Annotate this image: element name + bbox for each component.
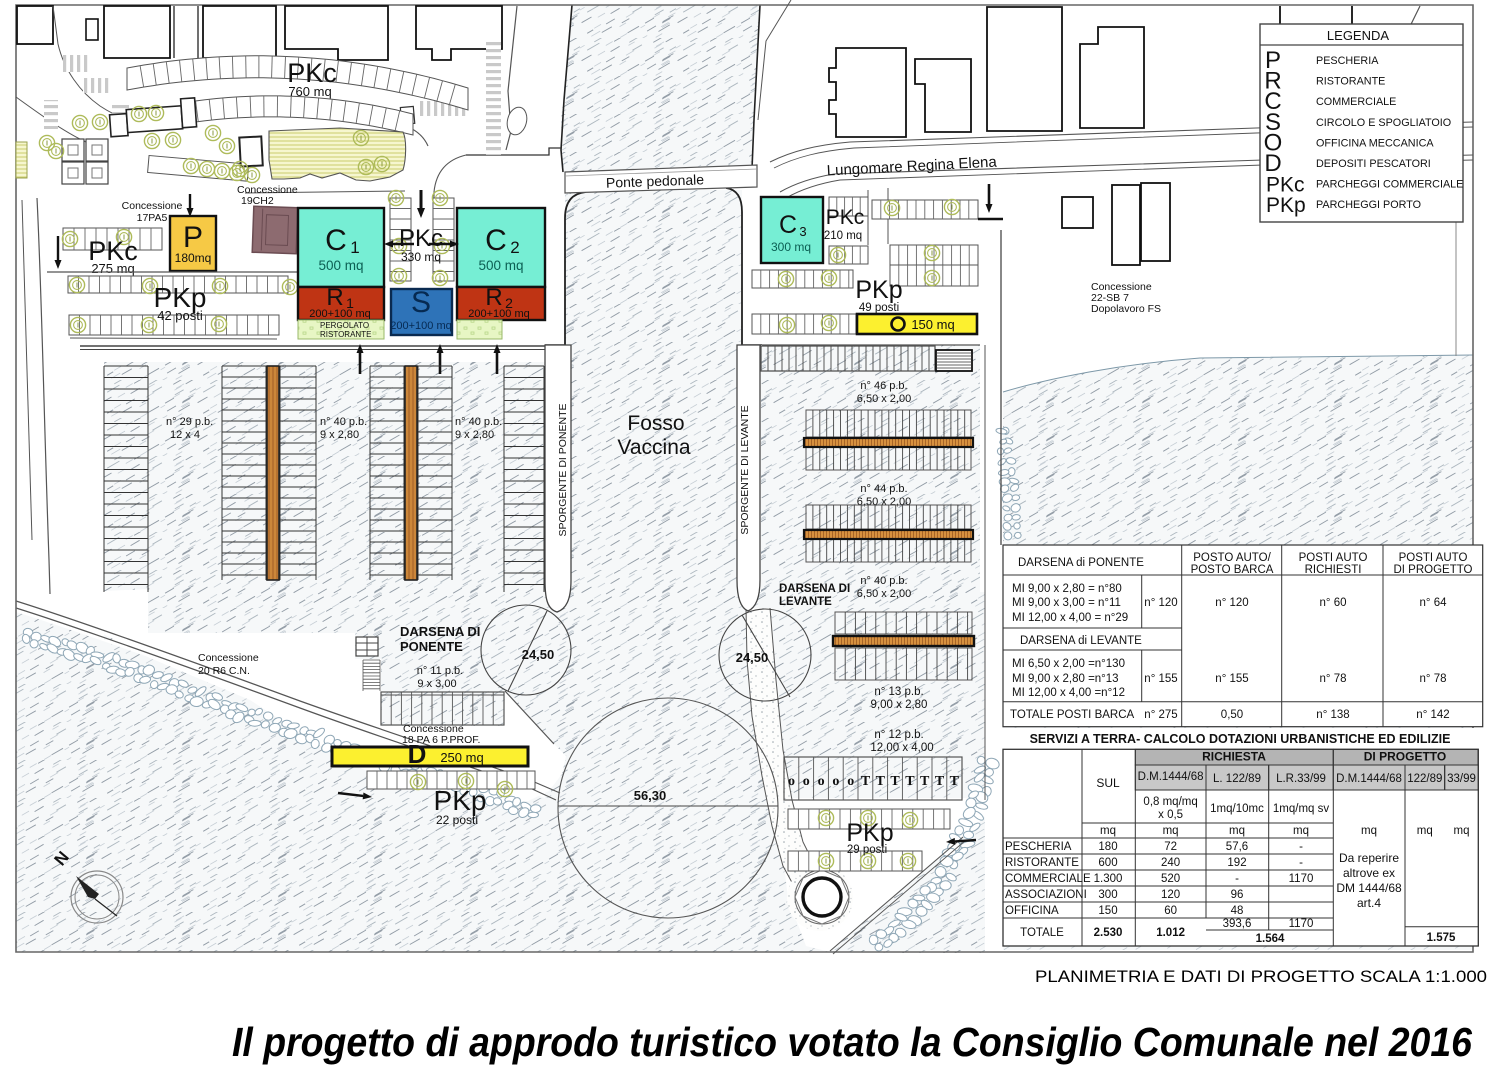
svg-text:29 posti: 29 posti: [847, 844, 887, 856]
svg-text:300 mq: 300 mq: [771, 240, 811, 254]
svg-text:Concessione: Concessione: [198, 652, 259, 664]
svg-text:R: R: [485, 284, 502, 311]
svg-text:57,6: 57,6: [1226, 841, 1248, 853]
svg-text:o: o: [803, 774, 810, 789]
svg-text:RISTORANTE: RISTORANTE: [320, 330, 371, 339]
svg-text:D.M.1444/68: D.M.1444/68: [1138, 771, 1204, 783]
svg-text:Concessione: Concessione: [122, 200, 183, 212]
svg-text:PKc: PKc: [399, 225, 443, 252]
svg-text:SPORGENTE DI PONENTE: SPORGENTE DI PONENTE: [557, 403, 569, 536]
svg-text:T: T: [861, 774, 871, 789]
svg-text:0,8 mq/mq: 0,8 mq/mq: [1143, 796, 1197, 808]
svg-text:PKc: PKc: [1266, 174, 1305, 197]
svg-text:275 mq: 275 mq: [91, 261, 134, 276]
svg-text:RICHIESTA: RICHIESTA: [1202, 750, 1266, 764]
svg-text:520: 520: [1161, 873, 1180, 885]
svg-text:mq: mq: [1163, 825, 1179, 837]
svg-text:art.4: art.4: [1357, 896, 1381, 910]
svg-text:Il progetto di approdo turisti: Il progetto di approdo turistico votato …: [232, 1019, 1473, 1065]
svg-text:24,50: 24,50: [522, 647, 555, 662]
svg-text:9,00 x 2,80: 9,00 x 2,80: [871, 699, 928, 711]
svg-text:SPORGENTE DI LEVANTE: SPORGENTE DI LEVANTE: [739, 405, 751, 534]
svg-text:SERVIZI A TERRA- CALCOLO DOTAZ: SERVIZI A TERRA- CALCOLO DOTAZIONI URBAN…: [1030, 732, 1451, 746]
svg-text:PERGOLATO: PERGOLATO: [320, 321, 369, 330]
svg-text:96: 96: [1231, 889, 1244, 901]
svg-text:180mq: 180mq: [175, 251, 212, 265]
svg-text:n° 155: n° 155: [1144, 673, 1177, 685]
svg-text:OFFICINA: OFFICINA: [1005, 905, 1059, 917]
svg-text:PONENTE: PONENTE: [400, 639, 463, 654]
svg-text:C: C: [485, 224, 507, 257]
svg-text:48: 48: [1231, 905, 1244, 917]
svg-text:n° 11 p.b.: n° 11 p.b.: [417, 665, 463, 677]
svg-text:1mq/mq sv: 1mq/mq sv: [1273, 803, 1329, 815]
svg-text:1.300: 1.300: [1094, 873, 1123, 885]
svg-text:PARCHEGGI PORTO: PARCHEGGI PORTO: [1316, 199, 1421, 211]
svg-text:1mq/10mc: 1mq/10mc: [1210, 803, 1264, 815]
svg-text:o: o: [818, 774, 825, 789]
svg-text:180: 180: [1098, 841, 1117, 853]
svg-text:49 posti: 49 posti: [859, 302, 899, 314]
svg-text:COMMERCIALE: COMMERCIALE: [1316, 96, 1396, 108]
svg-text:60: 60: [1164, 905, 1177, 917]
svg-text:PKp: PKp: [1266, 194, 1306, 217]
svg-text:122/89: 122/89: [1407, 773, 1442, 785]
svg-text:PKp: PKp: [846, 819, 893, 847]
svg-text:n° 142: n° 142: [1416, 709, 1449, 721]
svg-text:n° 46 p.b.: n° 46 p.b.: [860, 380, 907, 392]
svg-text:mq: mq: [1229, 825, 1245, 837]
svg-text:1170: 1170: [1289, 918, 1314, 930]
svg-text:20 R6 C.N.: 20 R6 C.N.: [198, 665, 250, 677]
svg-text:42 posti: 42 posti: [157, 308, 203, 323]
svg-text:TOTALE: TOTALE: [1020, 927, 1064, 939]
svg-text:n° 44 p.b.: n° 44 p.b.: [860, 483, 907, 495]
svg-text:n° 120: n° 120: [1144, 597, 1177, 609]
svg-text:Dopolavoro FS: Dopolavoro FS: [1091, 303, 1161, 315]
svg-text:MI 12,00 x 4,00 = n°29: MI 12,00 x 4,00 = n°29: [1012, 612, 1128, 624]
svg-text:T: T: [905, 774, 915, 789]
svg-text:mq: mq: [1293, 825, 1309, 837]
svg-text:L. 122/89: L. 122/89: [1213, 773, 1261, 785]
svg-text:1.575: 1.575: [1427, 932, 1456, 944]
svg-text:MI 9,00 x 2,80 = n°80: MI 9,00 x 2,80 = n°80: [1012, 583, 1122, 595]
svg-text:ASSOCIAZIONI: ASSOCIAZIONI: [1005, 889, 1087, 901]
svg-text:9 x 2,80: 9 x 2,80: [320, 429, 359, 441]
svg-text:n° 78: n° 78: [1320, 673, 1347, 685]
svg-text:PESCHERIA: PESCHERIA: [1005, 841, 1072, 853]
svg-text:POSTO AUTO/: POSTO AUTO/: [1193, 552, 1271, 564]
svg-text:TOTALE POSTI BARCA: TOTALE POSTI BARCA: [1010, 709, 1135, 721]
svg-text:-: -: [1299, 841, 1303, 853]
svg-text:n° 29 p.b.: n° 29 p.b.: [166, 416, 213, 428]
svg-text:POSTI AUTO: POSTI AUTO: [1399, 552, 1468, 564]
svg-text:n° 40 p.b.: n° 40 p.b.: [320, 416, 367, 428]
svg-text:200+100 mq: 200+100 mq: [309, 308, 370, 320]
svg-text:150: 150: [1098, 905, 1117, 917]
svg-text:6,50 x 2,00: 6,50 x 2,00: [857, 393, 911, 405]
svg-text:Da reperire: Da reperire: [1339, 851, 1399, 865]
svg-text:D: D: [408, 739, 427, 769]
svg-text:56,30: 56,30: [634, 788, 667, 803]
svg-text:OFFICINA MECCANICA: OFFICINA MECCANICA: [1316, 137, 1434, 149]
svg-text:mq: mq: [1454, 825, 1470, 837]
svg-text:240: 240: [1161, 857, 1180, 869]
svg-text:Vaccina: Vaccina: [617, 436, 690, 459]
svg-text:-: -: [1235, 873, 1239, 885]
svg-text:MI 12,00 x 4,00 =n°12: MI 12,00 x 4,00 =n°12: [1012, 687, 1125, 699]
svg-text:CIRCOLO E SPOGLIATOIO: CIRCOLO E SPOGLIATOIO: [1316, 117, 1451, 129]
svg-text:C: C: [779, 211, 797, 239]
svg-text:DARSENA DI: DARSENA DI: [779, 583, 850, 595]
svg-text:POSTI AUTO: POSTI AUTO: [1299, 552, 1368, 564]
svg-text:393,6: 393,6: [1223, 918, 1252, 930]
svg-text:MI 9,00 x 3,00 = n°11: MI 9,00 x 3,00 = n°11: [1012, 597, 1121, 609]
svg-text:DARSENA di PONENTE: DARSENA di PONENTE: [1018, 557, 1144, 569]
svg-text:DARSENA di LEVANTE: DARSENA di LEVANTE: [1020, 635, 1142, 647]
svg-text:120: 120: [1161, 889, 1180, 901]
svg-text:o: o: [788, 774, 795, 789]
svg-text:MI 9,00 x 2,80 =n°13: MI 9,00 x 2,80 =n°13: [1012, 673, 1119, 685]
svg-text:150 mq: 150 mq: [911, 317, 954, 332]
svg-text:9 x 3,00: 9 x 3,00: [417, 678, 456, 690]
svg-text:760 mq: 760 mq: [288, 84, 331, 99]
svg-text:n° 60: n° 60: [1320, 597, 1347, 609]
svg-text:DI PROGETTO: DI PROGETTO: [1364, 750, 1446, 764]
svg-text:n° 120: n° 120: [1215, 597, 1248, 609]
svg-text:LEVANTE: LEVANTE: [779, 596, 832, 608]
svg-text:DEPOSITI PESCATORI: DEPOSITI PESCATORI: [1316, 158, 1431, 170]
svg-text:12 x 4: 12 x 4: [170, 429, 200, 441]
svg-text:24,50: 24,50: [736, 650, 769, 665]
svg-text:MI 6,50 x 2,00 =n°130: MI 6,50 x 2,00 =n°130: [1012, 658, 1125, 670]
svg-text:17PA5: 17PA5: [137, 212, 168, 224]
svg-text:n° 40 p.b.: n° 40 p.b.: [860, 575, 907, 587]
svg-text:COMMERCIALE: COMMERCIALE: [1005, 873, 1091, 885]
svg-text:3: 3: [799, 224, 806, 239]
svg-text:PKp: PKp: [434, 785, 487, 816]
svg-text:Fosso: Fosso: [627, 412, 684, 435]
svg-text:300: 300: [1098, 889, 1117, 901]
svg-text:x 0,5: x 0,5: [1158, 809, 1183, 821]
svg-text:330 mq: 330 mq: [401, 250, 441, 264]
svg-text:1: 1: [350, 238, 359, 257]
svg-text:DI PROGETTO: DI PROGETTO: [1393, 564, 1472, 576]
svg-text:1.012: 1.012: [1156, 927, 1185, 939]
svg-text:PLANIMETRIA E DATI DI PROGETTO: PLANIMETRIA E DATI DI PROGETTO SCALA 1:1…: [1035, 967, 1487, 986]
svg-text:200+100 mq: 200+100 mq: [468, 308, 529, 320]
svg-text:n° 78: n° 78: [1420, 673, 1447, 685]
svg-text:mq: mq: [1361, 825, 1377, 837]
svg-text:DARSENA DI: DARSENA DI: [400, 624, 480, 639]
svg-text:PARCHEGGI COMMERCIALE: PARCHEGGI COMMERCIALE: [1316, 179, 1463, 191]
svg-text:LEGENDA: LEGENDA: [1327, 28, 1389, 43]
svg-text:n° 64: n° 64: [1420, 597, 1448, 609]
svg-text:T: T: [876, 774, 886, 789]
svg-text:RISTORANTE: RISTORANTE: [1316, 76, 1385, 88]
svg-text:n° 40 p.b.: n° 40 p.b.: [455, 416, 502, 428]
svg-text:mq: mq: [1417, 825, 1433, 837]
svg-text:1170: 1170: [1289, 873, 1314, 885]
svg-text:o: o: [847, 774, 854, 789]
svg-text:6,50 x 2,00: 6,50 x 2,00: [857, 588, 911, 600]
svg-text:R: R: [326, 284, 343, 311]
svg-text:PKc: PKc: [826, 206, 865, 229]
svg-text:192: 192: [1227, 857, 1246, 869]
svg-text:n° 12 p.b.: n° 12 p.b.: [874, 729, 923, 741]
svg-text:C: C: [325, 224, 347, 257]
svg-text:altrove ex: altrove ex: [1343, 866, 1395, 880]
svg-text:mq: mq: [1100, 825, 1116, 837]
svg-text:n° 275: n° 275: [1144, 709, 1177, 721]
svg-text:0,50: 0,50: [1221, 709, 1243, 721]
svg-text:DM 1444/68: DM 1444/68: [1336, 881, 1402, 895]
svg-text:500 mq: 500 mq: [478, 258, 523, 273]
svg-text:9 x 2,80: 9 x 2,80: [455, 429, 494, 441]
svg-text:POSTO BARCA: POSTO BARCA: [1191, 564, 1274, 576]
svg-text:1.564: 1.564: [1256, 933, 1285, 945]
svg-text:n° 13 p.b.: n° 13 p.b.: [874, 686, 923, 698]
svg-text:12,00 x 4,00: 12,00 x 4,00: [870, 742, 933, 754]
svg-text:RICHIESTI: RICHIESTI: [1305, 564, 1362, 576]
svg-text:L.R.33/99: L.R.33/99: [1276, 773, 1326, 785]
svg-text:RISTORANTE: RISTORANTE: [1005, 857, 1079, 869]
svg-text:19CH2: 19CH2: [241, 195, 274, 207]
svg-text:600: 600: [1098, 857, 1117, 869]
svg-text:o: o: [832, 774, 839, 789]
svg-text:210 mq: 210 mq: [824, 230, 862, 242]
svg-text:200+100 mq: 200+100 mq: [390, 320, 451, 332]
svg-text:250 mq: 250 mq: [440, 750, 483, 765]
svg-text:PKp: PKp: [855, 276, 902, 304]
svg-text:2: 2: [510, 238, 519, 257]
svg-text:S: S: [411, 286, 431, 319]
svg-text:T: T: [950, 774, 960, 789]
svg-text:PESCHERIA: PESCHERIA: [1316, 55, 1379, 67]
svg-text:22 posti: 22 posti: [436, 813, 478, 827]
svg-text:2.530: 2.530: [1094, 927, 1123, 939]
svg-text:72: 72: [1164, 841, 1177, 853]
svg-text:P: P: [183, 221, 203, 254]
svg-text:n° 138: n° 138: [1316, 709, 1349, 721]
svg-text:T: T: [920, 774, 930, 789]
svg-text:-: -: [1299, 857, 1303, 869]
svg-text:500 mq: 500 mq: [318, 258, 363, 273]
svg-text:D.M.1444/68: D.M.1444/68: [1336, 773, 1402, 785]
svg-text:6,50 x 2,00: 6,50 x 2,00: [857, 496, 911, 508]
svg-text:T: T: [935, 774, 945, 789]
svg-text:33/99: 33/99: [1447, 773, 1476, 785]
svg-text:T: T: [890, 774, 900, 789]
svg-text:n° 155: n° 155: [1215, 673, 1248, 685]
svg-text:SUL: SUL: [1096, 776, 1120, 790]
